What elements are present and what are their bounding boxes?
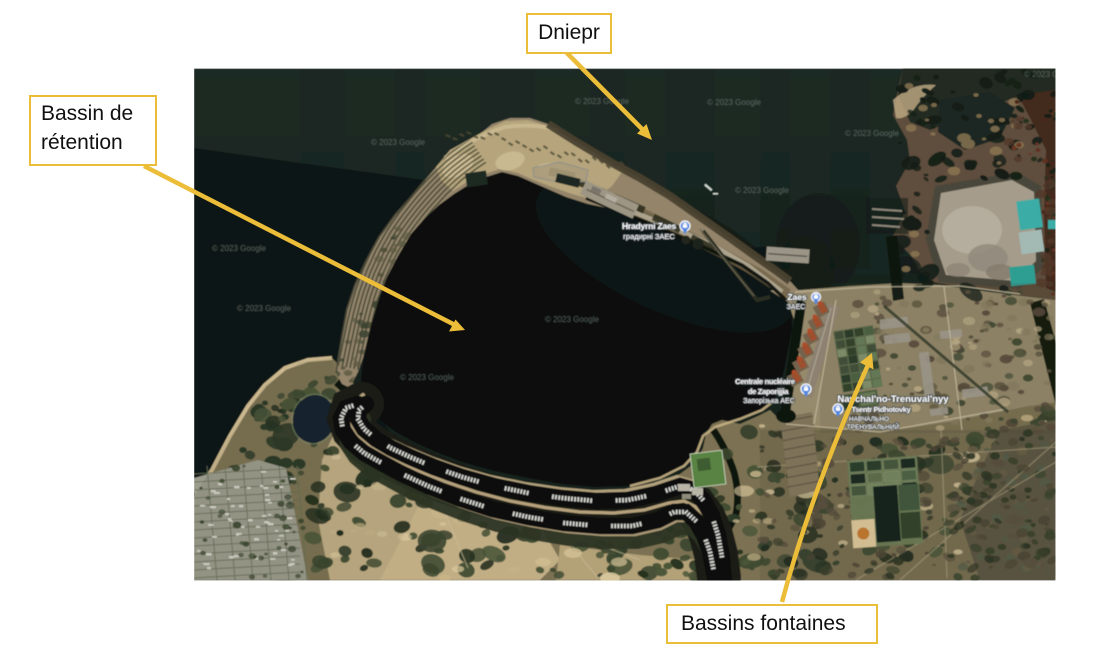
svg-text:Tsentr Pidhotovky: Tsentr Pidhotovky xyxy=(852,405,912,414)
svg-text:© 2023 Google: © 2023 Google xyxy=(400,373,454,382)
svg-text:НАВЧАЛЬНО: НАВЧАЛЬНО xyxy=(849,416,889,423)
svg-text:© 2023 Google: © 2023 Google xyxy=(212,244,266,253)
svg-text:ТРЕНУВАЛЬНИЙ: ТРЕНУВАЛЬНИЙ xyxy=(847,422,900,431)
svg-text:© 2023 Google: © 2023 Google xyxy=(371,138,425,147)
svg-text:градирні ЗАЕС: градирні ЗАЕС xyxy=(623,232,675,241)
svg-text:© 2023 Google: © 2023 Google xyxy=(237,304,291,313)
svg-text:© 2023 Google: © 2023 Google xyxy=(575,97,629,106)
svg-text:© 2023 Google: © 2023 Google xyxy=(545,315,599,324)
svg-text:Hradyrni Zaes: Hradyrni Zaes xyxy=(622,221,677,231)
svg-text:Centrale nucléaire: Centrale nucléaire xyxy=(735,377,795,386)
svg-text:© 2023 Google: © 2023 Google xyxy=(707,98,761,107)
svg-text:© 2023 Google: © 2023 Google xyxy=(845,129,899,138)
svg-text:Запорізька АЕС: Запорізька АЕС xyxy=(743,397,795,405)
svg-text:Zaes: Zaes xyxy=(787,292,807,302)
svg-text:ЗАЕС: ЗАЕС xyxy=(787,304,806,311)
svg-text:© 2023 Google: © 2023 Google xyxy=(735,186,789,195)
svg-text:de Zaporijjia: de Zaporijjia xyxy=(748,387,789,396)
